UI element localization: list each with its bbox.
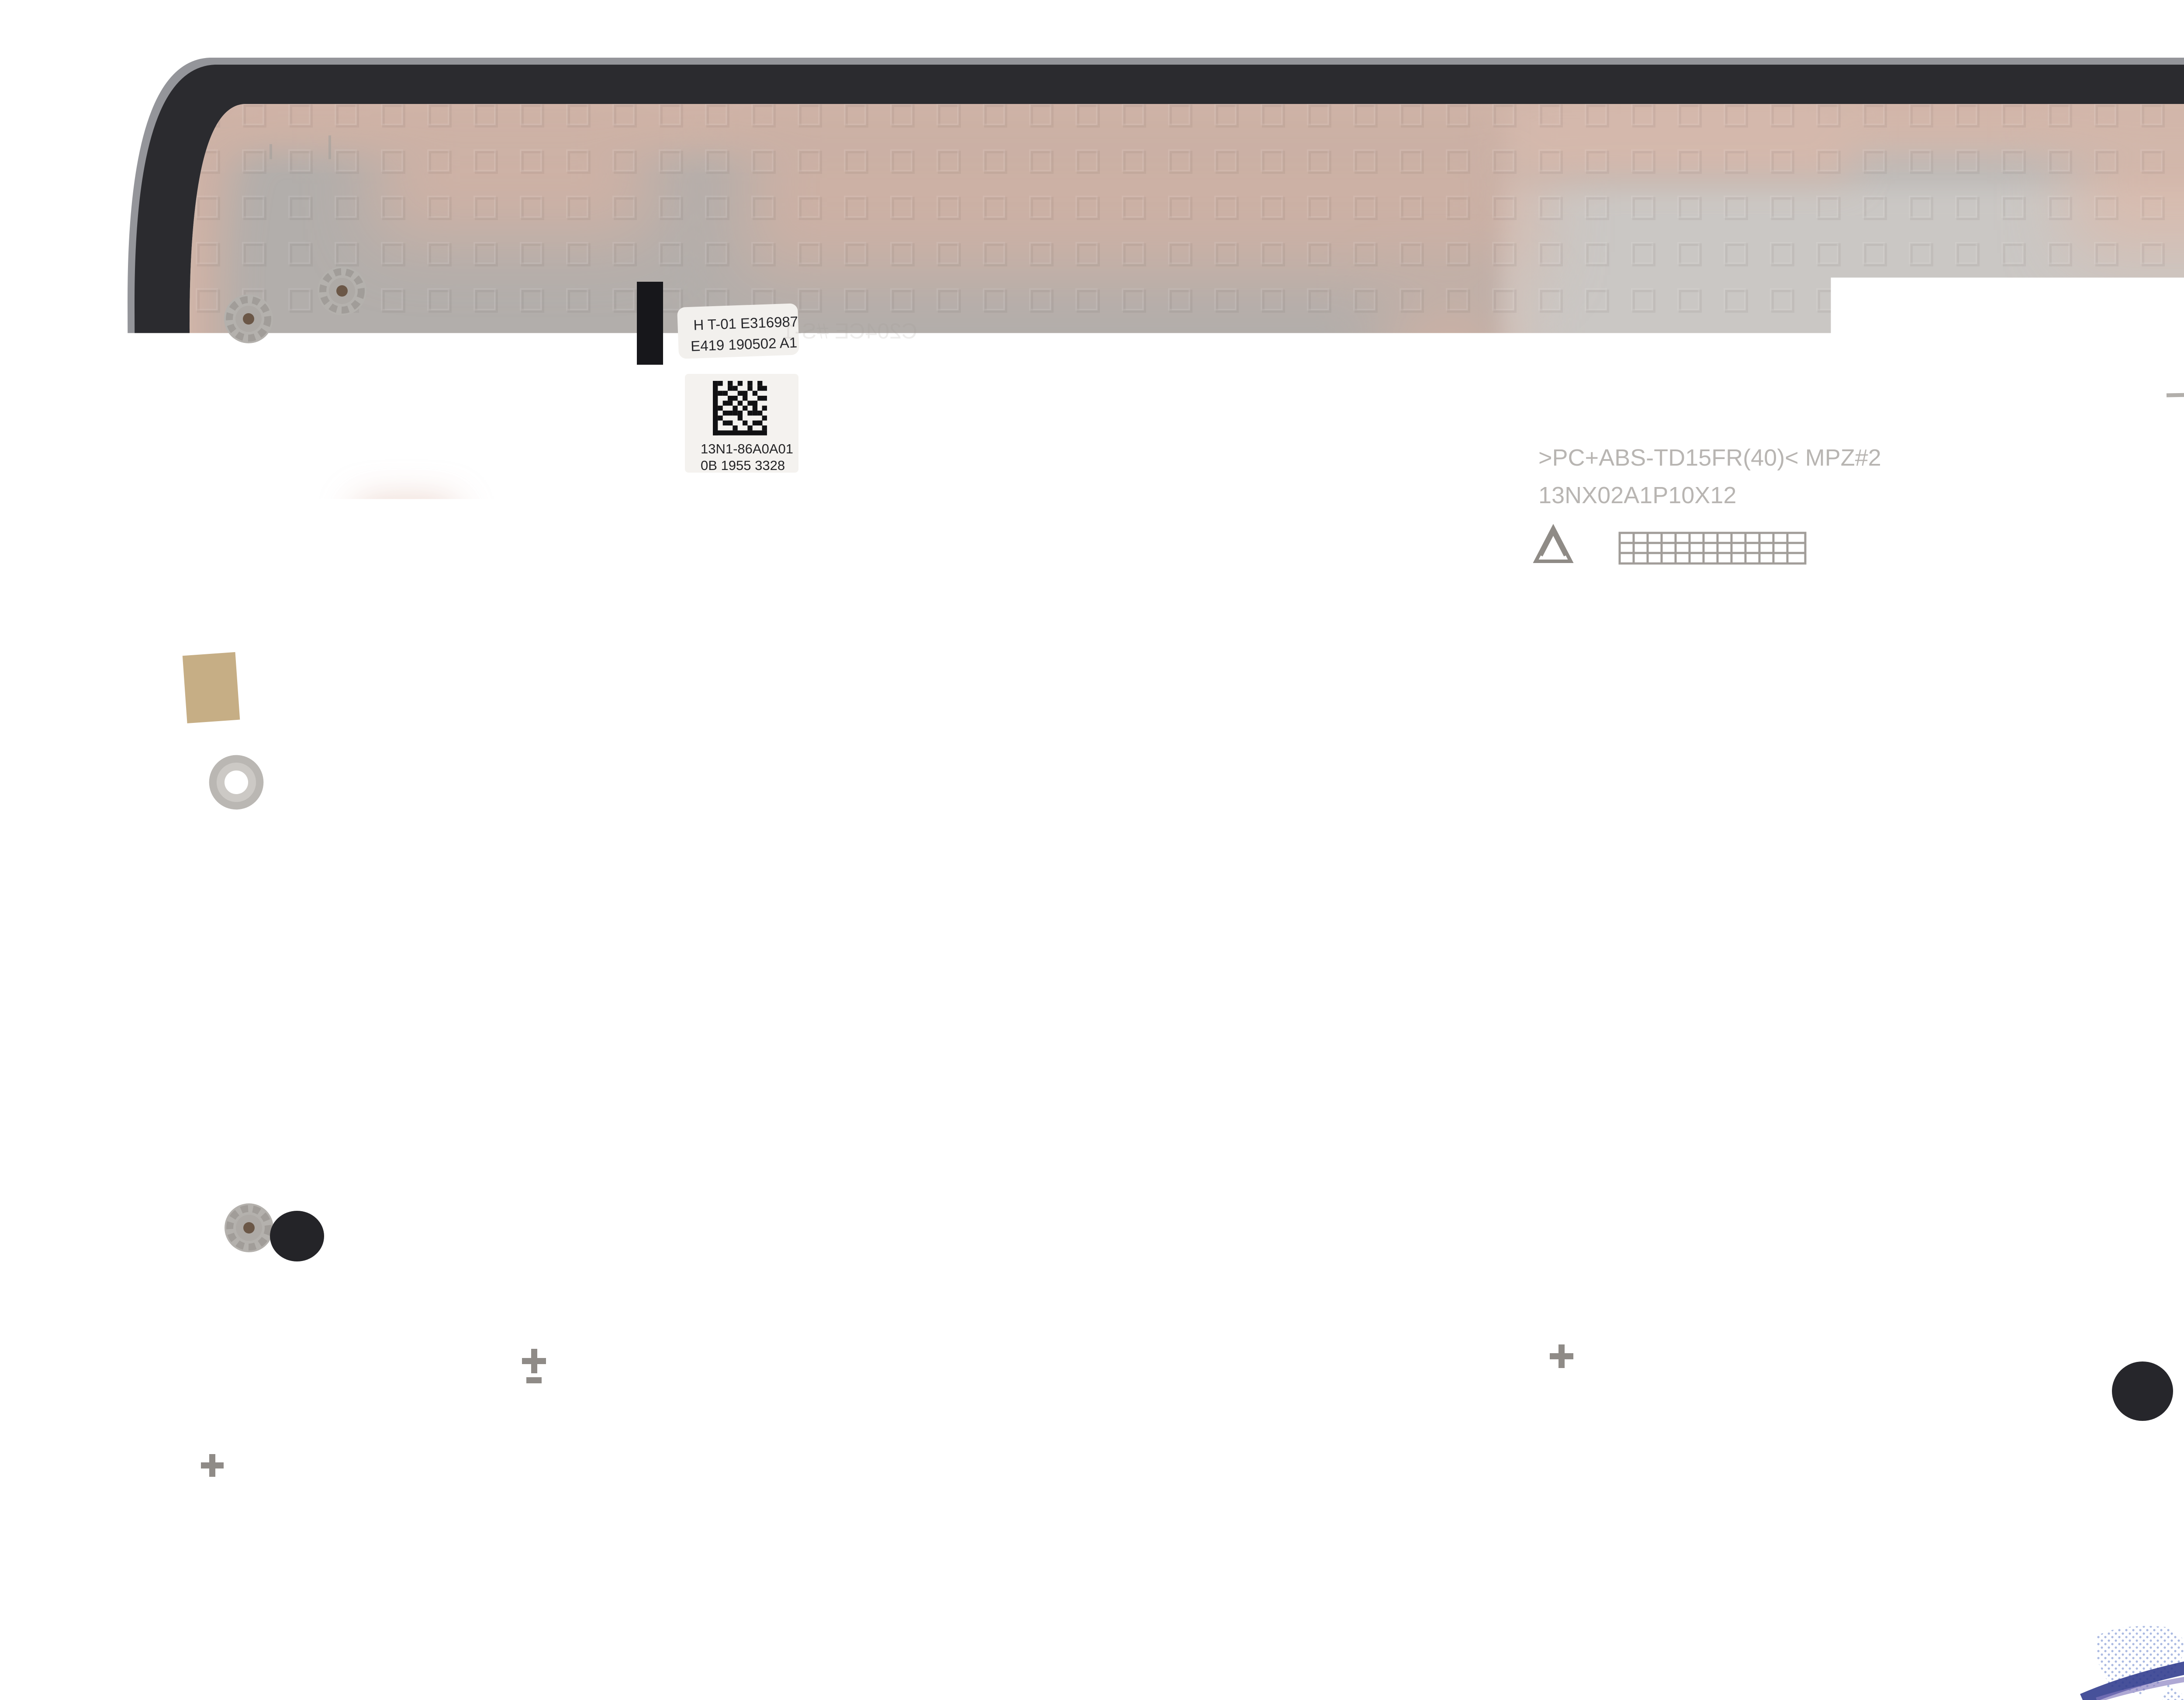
svg-text:C204CE #S-1: C204CE #S-1 — [783, 319, 918, 343]
svg-text:0B 1955 3328: 0B 1955 3328 — [701, 458, 785, 473]
svg-text:13NX02A1P10X12: 13NX02A1P10X12 — [1538, 482, 1736, 508]
svg-text:>PC+ABS-TD15FR(40)< MPZ#2: >PC+ABS-TD15FR(40)< MPZ#2 — [1538, 445, 1881, 471]
svg-text:13N1-86A0A01: 13N1-86A0A01 — [701, 441, 793, 456]
